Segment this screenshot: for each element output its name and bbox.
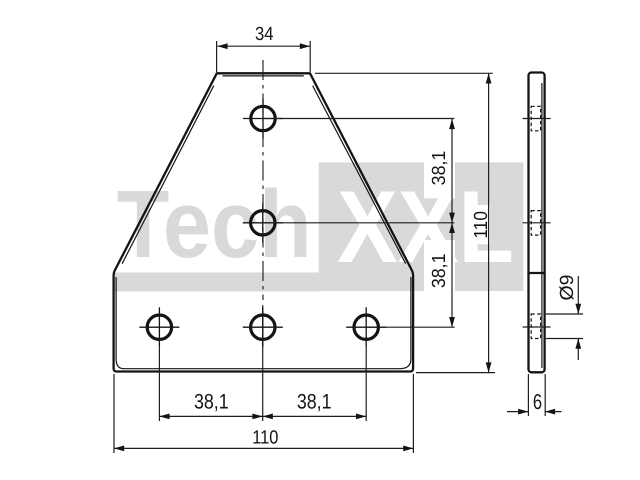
svg-text:Tech: Tech: [117, 171, 312, 278]
svg-text:6: 6: [533, 390, 542, 414]
svg-text:110: 110: [252, 428, 278, 449]
svg-text:38,1: 38,1: [194, 390, 229, 413]
svg-text:Ø9: Ø9: [557, 275, 578, 301]
svg-text:38,1: 38,1: [429, 253, 450, 288]
svg-text:38,1: 38,1: [429, 151, 450, 186]
svg-text:34: 34: [255, 24, 274, 45]
svg-text:110: 110: [471, 211, 492, 238]
svg-text:38,1: 38,1: [297, 390, 332, 413]
